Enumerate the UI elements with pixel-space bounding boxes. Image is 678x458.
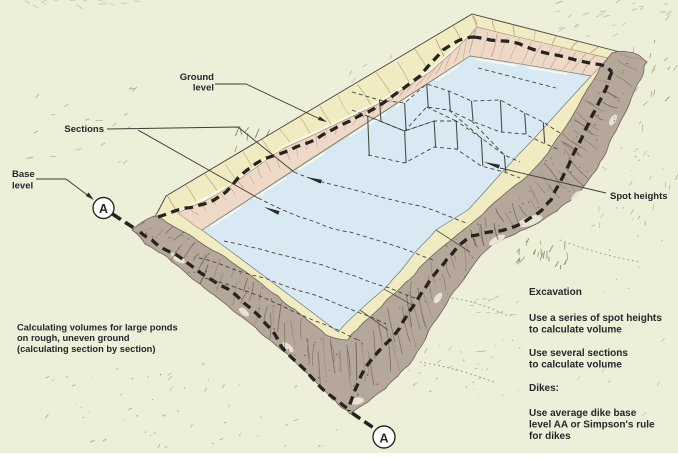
- svg-text:Excavation: Excavation: [529, 287, 582, 298]
- svg-text:Base: Base: [12, 169, 35, 180]
- svg-text:Dikes:: Dikes:: [529, 383, 559, 394]
- svg-text:level: level: [12, 181, 33, 192]
- svg-text:level: level: [193, 83, 214, 94]
- svg-text:(calculating section by sectio: (calculating section by section): [17, 344, 155, 354]
- svg-text:to calculate volume: to calculate volume: [529, 325, 622, 336]
- svg-text:Sections: Sections: [64, 124, 104, 135]
- svg-text:for dikes: for dikes: [529, 431, 571, 442]
- svg-text:A: A: [99, 202, 108, 216]
- svg-text:level AA or Simpson's rule: level AA or Simpson's rule: [529, 420, 655, 431]
- svg-text:Calculating volumes for large: Calculating volumes for large ponds: [17, 323, 178, 333]
- svg-text:on rough, uneven ground: on rough, uneven ground: [17, 333, 130, 343]
- svg-text:Use average dike base: Use average dike base: [529, 408, 637, 419]
- svg-text:Use several sections: Use several sections: [529, 348, 628, 359]
- svg-text:A: A: [379, 432, 388, 446]
- svg-text:Use a series of spot heights: Use a series of spot heights: [529, 313, 662, 324]
- svg-text:Spot heights: Spot heights: [610, 191, 668, 202]
- svg-text:Ground: Ground: [180, 72, 214, 83]
- svg-text:to calculate volume: to calculate volume: [529, 360, 622, 371]
